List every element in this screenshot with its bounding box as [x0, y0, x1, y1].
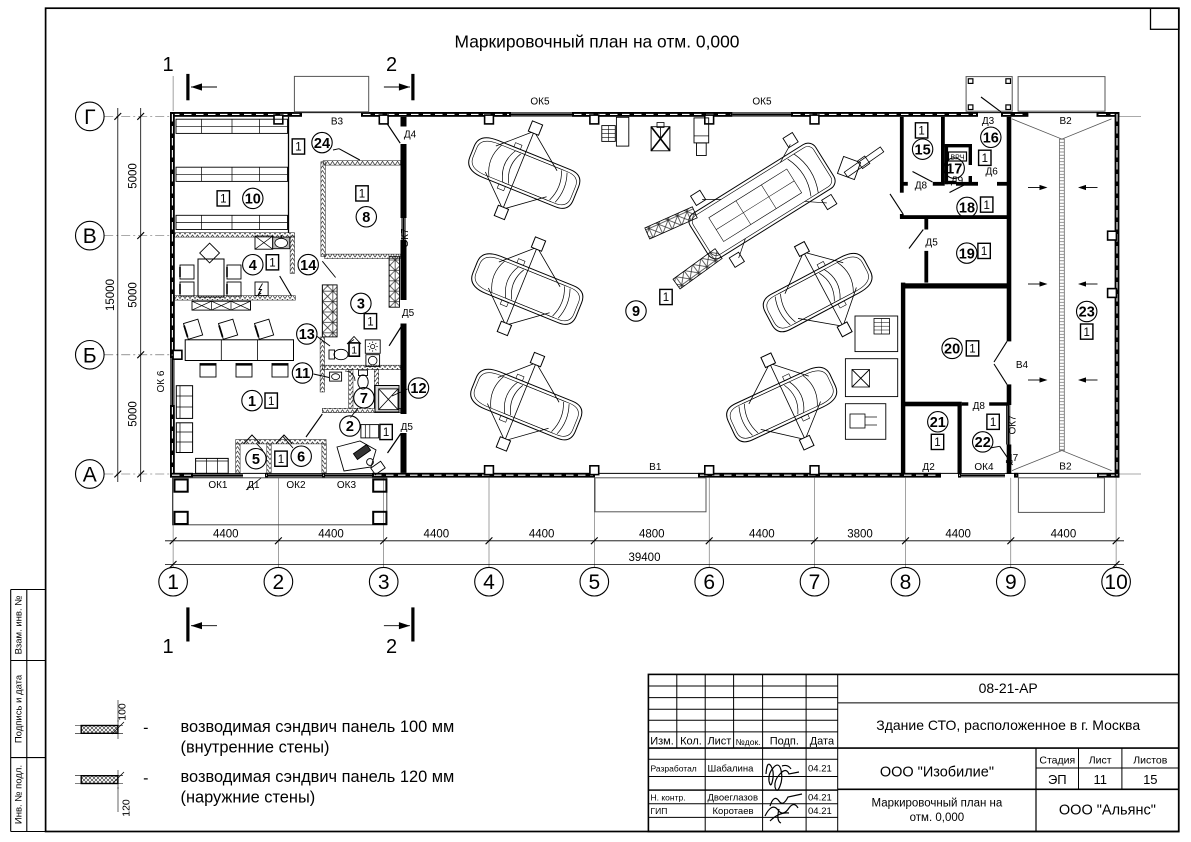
svg-text:1: 1: [248, 394, 256, 410]
svg-text:6: 6: [703, 571, 715, 594]
svg-text:1: 1: [383, 427, 389, 439]
svg-text:1: 1: [278, 454, 284, 466]
svg-text:10: 10: [245, 192, 261, 208]
svg-text:120: 120: [121, 799, 133, 817]
svg-text:Коротаев: Коротаев: [713, 806, 754, 817]
svg-text:ОК3: ОК3: [337, 480, 357, 491]
svg-text:7: 7: [360, 391, 368, 407]
svg-text:2: 2: [386, 54, 397, 76]
svg-text:Здание СТО, расположенное в г.: Здание СТО, расположенное в г. Москва: [876, 717, 1140, 733]
svg-text:Д6: Д6: [986, 167, 999, 178]
svg-text:19: 19: [959, 246, 975, 262]
svg-text:1: 1: [295, 142, 301, 154]
svg-text:10: 10: [1104, 571, 1127, 594]
svg-text:ОК1: ОК1: [208, 480, 228, 491]
svg-text:3: 3: [378, 571, 390, 594]
svg-text:ОК4: ОК4: [974, 462, 994, 473]
svg-text:1: 1: [351, 345, 357, 357]
svg-text:21: 21: [930, 415, 946, 431]
svg-text:1: 1: [969, 344, 975, 356]
svg-text:Д3: Д3: [982, 116, 995, 127]
svg-text:1: 1: [981, 246, 987, 258]
svg-text:15: 15: [915, 142, 931, 158]
svg-text:Д8: Д8: [915, 180, 928, 191]
svg-text:4400: 4400: [945, 528, 971, 540]
svg-text:Маркировочный план на: Маркировочный план на: [872, 798, 1003, 810]
svg-text:11: 11: [295, 366, 310, 382]
svg-text:1: 1: [268, 396, 274, 408]
svg-text:Д8: Д8: [973, 401, 986, 412]
svg-text:20: 20: [944, 342, 960, 358]
svg-text:Н. контр.: Н. контр.: [651, 793, 686, 803]
svg-text:(внутренние стены): (внутренние стены): [181, 738, 330, 756]
svg-text:1: 1: [359, 189, 365, 201]
svg-text:13: 13: [299, 327, 315, 343]
svg-text:5000: 5000: [128, 401, 140, 427]
svg-text:100: 100: [117, 703, 129, 721]
svg-text:1: 1: [934, 437, 940, 449]
svg-text:-: -: [143, 770, 148, 787]
svg-text:3: 3: [357, 297, 365, 313]
svg-text:ОК5: ОК5: [530, 97, 550, 108]
svg-text:№док.: №док.: [736, 737, 761, 747]
svg-text:1: 1: [162, 54, 173, 76]
svg-text:1: 1: [269, 258, 275, 270]
svg-text:18: 18: [959, 201, 975, 217]
svg-text:Листов: Листов: [1133, 755, 1168, 767]
svg-text:14: 14: [300, 258, 316, 274]
svg-text:04.21: 04.21: [808, 806, 832, 817]
svg-text:(наружние стены): (наружние стены): [181, 789, 316, 807]
svg-text:А: А: [83, 464, 97, 487]
svg-text:1: 1: [663, 292, 669, 304]
svg-text:5: 5: [252, 452, 260, 468]
svg-text:4: 4: [483, 571, 495, 594]
svg-text:6: 6: [297, 449, 305, 465]
svg-text:Лист: Лист: [707, 736, 731, 748]
svg-text:В: В: [83, 225, 97, 248]
svg-text:Д5: Д5: [402, 308, 415, 319]
svg-text:8: 8: [900, 571, 912, 594]
svg-text:В2: В2: [1059, 116, 1072, 127]
svg-text:1: 1: [220, 194, 226, 206]
svg-text:Кол.: Кол.: [680, 736, 702, 748]
svg-text:отм. 0,000: отм. 0,000: [910, 812, 965, 824]
svg-text:ОК5: ОК5: [752, 97, 772, 108]
svg-text:4400: 4400: [749, 528, 775, 540]
svg-text:04.21: 04.21: [808, 764, 832, 775]
svg-text:5000: 5000: [128, 163, 140, 189]
svg-text:В4: В4: [1016, 360, 1029, 371]
svg-text:1: 1: [918, 126, 924, 138]
svg-text:Д9: Д9: [951, 175, 964, 186]
svg-text:39400: 39400: [629, 552, 661, 564]
svg-text:-: -: [143, 720, 148, 737]
svg-text:Подп.: Подп.: [770, 736, 799, 748]
svg-text:Лист: Лист: [1089, 755, 1112, 767]
svg-text:4800: 4800: [639, 528, 665, 540]
svg-text:возводимая сэндвич панель 100: возводимая сэндвич панель 100 мм: [181, 718, 455, 736]
svg-text:Разработал: Разработал: [651, 764, 697, 774]
svg-text:возводимая сэндвич панель 120: возводимая сэндвич панель 120 мм: [181, 768, 455, 786]
svg-text:ОК 6: ОК 6: [156, 370, 167, 392]
svg-text:Инв. № подл.: Инв. № подл.: [14, 765, 25, 824]
svg-text:4400: 4400: [424, 528, 450, 540]
svg-text:1: 1: [1083, 327, 1089, 339]
svg-text:В3: В3: [331, 116, 344, 127]
svg-text:4400: 4400: [1051, 528, 1077, 540]
svg-text:Д1: Д1: [247, 480, 260, 491]
svg-text:4: 4: [249, 258, 257, 274]
svg-text:4400: 4400: [318, 528, 344, 540]
svg-text:Г: Г: [84, 106, 95, 129]
svg-text:1: 1: [167, 571, 179, 594]
svg-text:11: 11: [1093, 772, 1107, 787]
svg-text:15: 15: [1143, 772, 1157, 787]
svg-text:7: 7: [809, 571, 821, 594]
svg-text:Взам. инв. №: Взам. инв. №: [14, 596, 25, 655]
svg-text:3800: 3800: [847, 528, 873, 540]
svg-text:ООО "Изобилие": ООО "Изобилие": [880, 765, 994, 781]
svg-text:08-21-АР: 08-21-АР: [979, 680, 1038, 696]
svg-text:Маркировочный план на отм. 0,0: Маркировочный план на отм. 0,000: [455, 32, 740, 52]
svg-text:22: 22: [975, 435, 991, 451]
svg-text:1: 1: [162, 636, 173, 658]
svg-text:ОК7: ОК7: [1007, 415, 1018, 435]
svg-text:9: 9: [632, 304, 640, 320]
svg-text:8: 8: [362, 210, 370, 226]
svg-text:Д5: Д5: [401, 422, 414, 433]
svg-text:24: 24: [314, 136, 330, 152]
svg-text:Б: Б: [83, 344, 97, 367]
svg-text:Двоеглазов: Двоеглазов: [708, 793, 759, 804]
svg-text:Д7: Д7: [1006, 453, 1019, 464]
svg-text:1: 1: [983, 200, 989, 212]
svg-text:5000: 5000: [128, 282, 140, 308]
svg-text:Шабалина: Шабалина: [708, 764, 755, 775]
svg-text:ОК7: ОК7: [400, 228, 411, 248]
svg-text:2: 2: [386, 636, 397, 658]
svg-text:ООО "Альянс": ООО "Альянс": [1059, 803, 1156, 819]
svg-text:4400: 4400: [213, 528, 239, 540]
svg-text:2: 2: [273, 571, 285, 594]
svg-text:2: 2: [346, 419, 354, 435]
svg-text:1: 1: [367, 316, 373, 328]
svg-text:9: 9: [1005, 571, 1017, 594]
svg-text:Стадия: Стадия: [1039, 755, 1075, 767]
svg-text:04.21: 04.21: [808, 793, 832, 804]
svg-text:Дата: Дата: [810, 736, 835, 748]
svg-text:15000: 15000: [105, 279, 117, 311]
svg-text:16: 16: [983, 131, 999, 147]
svg-text:ГИП: ГИП: [651, 806, 668, 816]
svg-text:Подпись и дата: Подпись и дата: [14, 674, 25, 743]
svg-text:ОК2: ОК2: [286, 480, 306, 491]
svg-text:Д2: Д2: [922, 462, 935, 473]
svg-text:В2: В2: [1059, 461, 1072, 472]
svg-text:1: 1: [982, 153, 988, 165]
svg-text:1: 1: [990, 417, 996, 429]
svg-text:В1: В1: [649, 462, 662, 473]
svg-text:Изм.: Изм.: [650, 736, 674, 748]
svg-text:4400: 4400: [529, 528, 555, 540]
svg-text:Д5: Д5: [925, 237, 938, 248]
svg-text:ЭП: ЭП: [1048, 772, 1067, 787]
svg-text:23: 23: [1079, 305, 1095, 321]
svg-text:12: 12: [410, 381, 426, 397]
svg-text:Д4: Д4: [404, 130, 417, 141]
svg-text:5: 5: [588, 571, 600, 594]
